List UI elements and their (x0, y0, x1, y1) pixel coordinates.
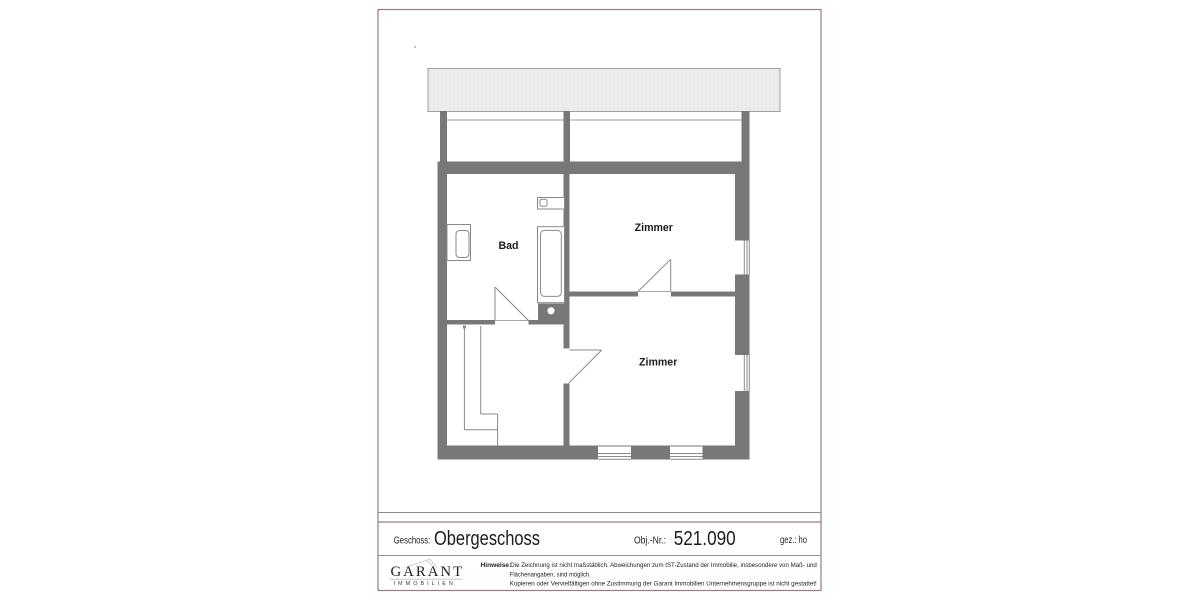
svg-text:Geschoss:: Geschoss: (394, 536, 431, 547)
svg-text:GARANT: GARANT (391, 564, 465, 580)
svg-text:Zimmer: Zimmer (639, 357, 677, 369)
svg-text:IMMOBILIEN: IMMOBILIEN (394, 581, 456, 587)
svg-text:Obergeschoss: Obergeschoss (434, 528, 540, 550)
svg-text:Obj.-Nr.:: Obj.-Nr.: (634, 536, 666, 547)
svg-text:Zimmer: Zimmer (635, 222, 673, 234)
svg-text:Hinweise:: Hinweise: (481, 562, 512, 569)
svg-text:Flächenangaben, sind möglich.: Flächenangaben, sind möglich. (510, 571, 591, 578)
svg-text:gez.: ho: gez.: ho (780, 535, 807, 546)
svg-text:Bad: Bad (498, 240, 518, 252)
svg-text:Kopieren oder Vervielfältigen: Kopieren oder Vervielfältigen ohne Zusti… (510, 580, 817, 587)
svg-text:521.090: 521.090 (674, 527, 736, 550)
svg-text:Die Zeichnung ist nicht maßstä: Die Zeichnung ist nicht maßstäblich. Abw… (510, 562, 817, 569)
